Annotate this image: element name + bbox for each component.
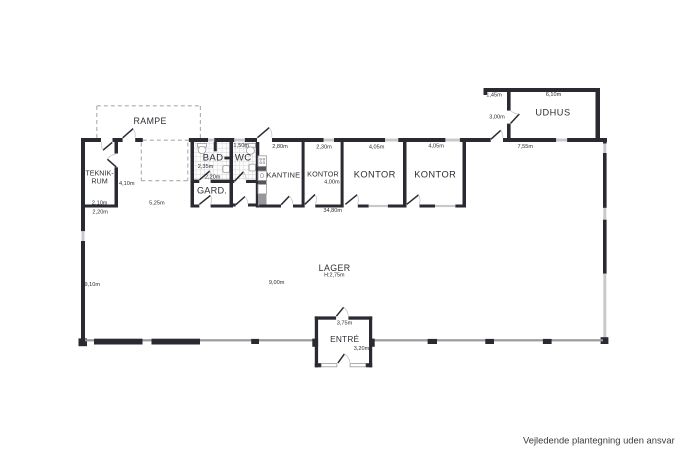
svg-text:2,10m: 2,10m — [92, 200, 108, 206]
svg-text:3,00m: 3,00m — [489, 114, 505, 120]
svg-text:2,20m: 2,20m — [205, 175, 221, 181]
svg-text:KONTOR: KONTOR — [307, 170, 339, 179]
svg-text:4,05m: 4,05m — [428, 144, 444, 150]
svg-text:6,10m: 6,10m — [546, 92, 562, 98]
svg-text:RUM: RUM — [91, 177, 107, 186]
svg-text:3,20m: 3,20m — [354, 346, 370, 352]
svg-text:RAMPE: RAMPE — [134, 116, 167, 126]
svg-text:ENTRÉ: ENTRÉ — [330, 334, 359, 344]
svg-text:H:2,75m: H:2,75m — [324, 272, 345, 278]
svg-text:2,20m: 2,20m — [92, 210, 108, 216]
svg-text:2,30m: 2,30m — [316, 145, 332, 151]
svg-text:2,80m: 2,80m — [272, 144, 288, 150]
svg-text:1,45m: 1,45m — [486, 92, 502, 98]
svg-text:Vejledende plantegning uden an: Vejledende plantegning uden ansvar — [523, 435, 675, 446]
svg-text:UDHUS: UDHUS — [535, 107, 570, 117]
svg-text:BAD: BAD — [203, 153, 224, 164]
svg-text:1,50m: 1,50m — [233, 143, 249, 149]
svg-text:4,00m: 4,00m — [324, 180, 340, 186]
svg-text:9,10m: 9,10m — [85, 282, 101, 288]
svg-text:KANTINE: KANTINE — [266, 171, 300, 180]
svg-text:4,05m: 4,05m — [369, 145, 385, 151]
svg-text:GARD.: GARD. — [197, 186, 227, 196]
svg-text:KONTOR: KONTOR — [414, 169, 456, 179]
svg-text:5,25m: 5,25m — [149, 200, 165, 206]
svg-text:KONTOR: KONTOR — [354, 169, 396, 179]
svg-text:2,35m: 2,35m — [198, 164, 214, 170]
svg-text:9,00m: 9,00m — [269, 280, 285, 286]
svg-text:3,75m: 3,75m — [337, 321, 353, 327]
svg-text:7,55m: 7,55m — [518, 144, 534, 150]
svg-text:4,10m: 4,10m — [119, 181, 135, 187]
svg-text:34,80m: 34,80m — [323, 208, 342, 214]
svg-text:WC: WC — [235, 153, 252, 164]
